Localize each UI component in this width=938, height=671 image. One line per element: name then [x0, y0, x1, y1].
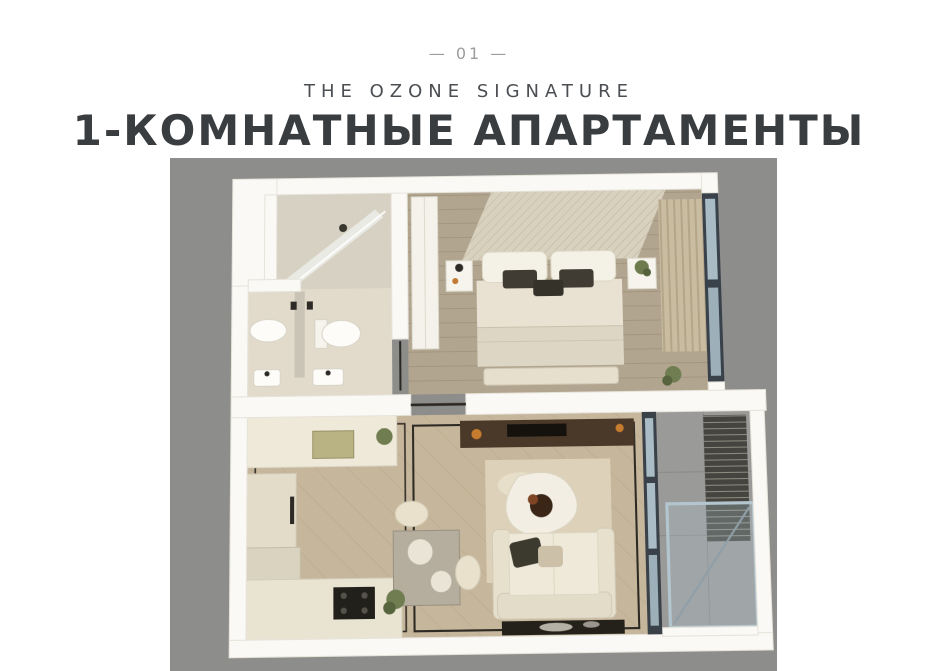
glass-pane — [645, 418, 655, 477]
balcony-sill — [662, 626, 758, 636]
cabinet-handle — [290, 497, 294, 525]
project-subtitle: THE OZONE SIGNATURE — [0, 81, 938, 102]
sofa-back — [497, 592, 612, 619]
dining-chair — [395, 501, 428, 527]
dining-chair — [455, 555, 480, 590]
kitchen-counter-bottom-run — [246, 578, 402, 640]
cooktop — [333, 587, 375, 620]
sofa-pillow-beige — [538, 546, 563, 568]
headboard-panel — [461, 189, 667, 260]
accent-pillow — [559, 269, 594, 288]
wall-shower — [264, 195, 277, 292]
accent-pillow — [503, 270, 538, 289]
toilet-bowl — [322, 320, 361, 347]
floor-plan-backdrop — [170, 158, 777, 671]
wall-divider-left — [231, 395, 411, 418]
slide-header: — 01 — THE OZONE SIGNATURE 1-КОМНАТНЫЕ А… — [0, 0, 938, 155]
room-balcony — [656, 410, 758, 634]
bed-bench — [484, 367, 619, 385]
floor-plan-3d-wrap — [189, 164, 777, 671]
faucet — [291, 302, 297, 310]
wall-divider-right — [466, 390, 766, 415]
counter-step — [246, 547, 300, 584]
bathtub-basin — [250, 319, 287, 342]
page-number: — 01 — — [0, 44, 938, 63]
wall-bath-stub — [248, 279, 301, 292]
wall-bath-bedroom — [391, 193, 408, 339]
tall-cabinet — [247, 473, 297, 548]
kitchen-sink — [313, 431, 354, 459]
faucet — [307, 301, 313, 309]
bed-blanket — [477, 326, 624, 367]
curtain-blinds — [658, 199, 707, 352]
page-title: 1-КОМНАТНЫЕ АПАРТАМЕНТЫ — [0, 106, 938, 155]
doorway-threshold — [411, 404, 466, 405]
lumbar-pillow — [533, 280, 564, 297]
wall-right-top — [701, 173, 718, 193]
tv — [507, 424, 567, 437]
apartment-floor-plan — [189, 164, 777, 671]
